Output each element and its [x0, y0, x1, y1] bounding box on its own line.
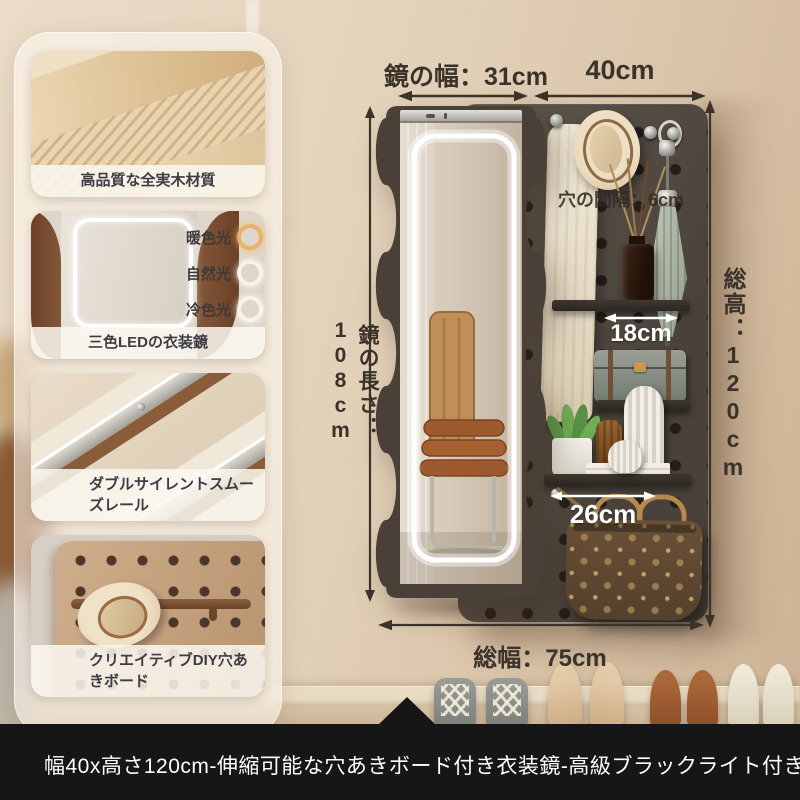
feature-card-rail: ダブルサイレントスムーズレール: [31, 373, 265, 521]
hook-knob: [550, 114, 563, 127]
hole-spacing-dimension: 穴の間隔：6cm: [558, 186, 684, 212]
feature-caption: 高品質な全実木材質: [31, 165, 265, 197]
total-width-arrow-icon: [378, 617, 704, 633]
shelf-upper: [552, 300, 690, 311]
shoe-gray-boot: [434, 678, 476, 726]
footer-banner: 幅40x高さ120cm-伸縮可能な穴あきボード付き衣装鏡-高級ブラックライト付き: [0, 724, 800, 800]
mirror-height-line-icon: [362, 106, 378, 602]
feature-card-led: 暖色光 自然光 冷色光 三色LEDの衣装鏡: [31, 211, 265, 359]
diffuser-bottle: [620, 244, 654, 302]
boot-laces: [493, 684, 521, 716]
shoe-brown-slingback: [687, 670, 718, 726]
shelf-lower: [544, 474, 692, 486]
light-mode-row: 暖色光: [169, 225, 263, 249]
feature-sidebar: 高品質な全実木材質 暖色光 自然光 冷色光 三色LEDの衣装鏡: [14, 32, 282, 736]
feature-card-wood: 高品質な全実木材質: [31, 51, 265, 197]
board-width-dimension: 40cm: [560, 55, 680, 86]
box-strap: [608, 350, 613, 402]
warm-light-ring-icon: [237, 224, 263, 250]
striped-vase-ball: [608, 440, 642, 473]
hook-knob: [667, 127, 680, 140]
wall-trim: [246, 0, 259, 34]
shoe-brown-slingback: [650, 670, 681, 726]
umbrella-cap: [659, 140, 675, 156]
total-height-line-icon: [702, 100, 718, 628]
mirror-width-arrow-icon: [398, 88, 528, 104]
hook-knob: [644, 126, 657, 139]
dressing-mirror: [374, 102, 548, 602]
cool-light-ring-icon: [237, 296, 263, 322]
shoe-white-flat: [728, 664, 759, 726]
feature-caption: クリエイティブDIY穴あきボード: [31, 645, 265, 697]
box-clasp: [634, 362, 646, 372]
boot-laces: [441, 684, 469, 716]
feature-card-pegboard: クリエイティブDIY穴あきボード: [31, 535, 265, 697]
board-width-arrow-icon: [534, 88, 706, 104]
diffuser: [616, 158, 660, 304]
upper-shelf-dimension: 18cm: [602, 320, 680, 348]
light-mode-label: 自然光: [186, 263, 231, 284]
total-width-dimension: 総幅：75cm: [458, 638, 622, 673]
width-arrow-26-icon: [550, 489, 656, 503]
light-mode-label: 冷色光: [186, 299, 231, 320]
lower-shelf-dimension: 26cm: [556, 499, 650, 530]
banner-pointer: [378, 697, 436, 725]
slide-rail: [400, 110, 522, 122]
natural-light-ring-icon: [237, 260, 263, 286]
footer-title: 幅40x高さ120cm-伸縮可能な穴あきボード付き衣装鏡-高級ブラックライト付き: [44, 750, 800, 780]
product-image: 18cm 26cm 穴の間隔：6cm: [0, 0, 800, 800]
feature-caption: ダブルサイレントスムーズレール: [31, 469, 265, 521]
shoe-white-flat: [763, 664, 794, 726]
shoe-gray-boot: [486, 678, 528, 726]
light-mode-row: 冷色光: [169, 297, 263, 321]
bag-body: [565, 519, 703, 621]
light-mode-row: 自然光: [169, 261, 263, 285]
box-strap: [666, 350, 671, 402]
feature-caption: 三色LEDの衣装鏡: [31, 327, 265, 359]
total-height-dimension: 総高：120cm: [716, 264, 750, 484]
dowel-peg: [209, 607, 217, 621]
light-mode-label: 暖色光: [186, 227, 231, 248]
